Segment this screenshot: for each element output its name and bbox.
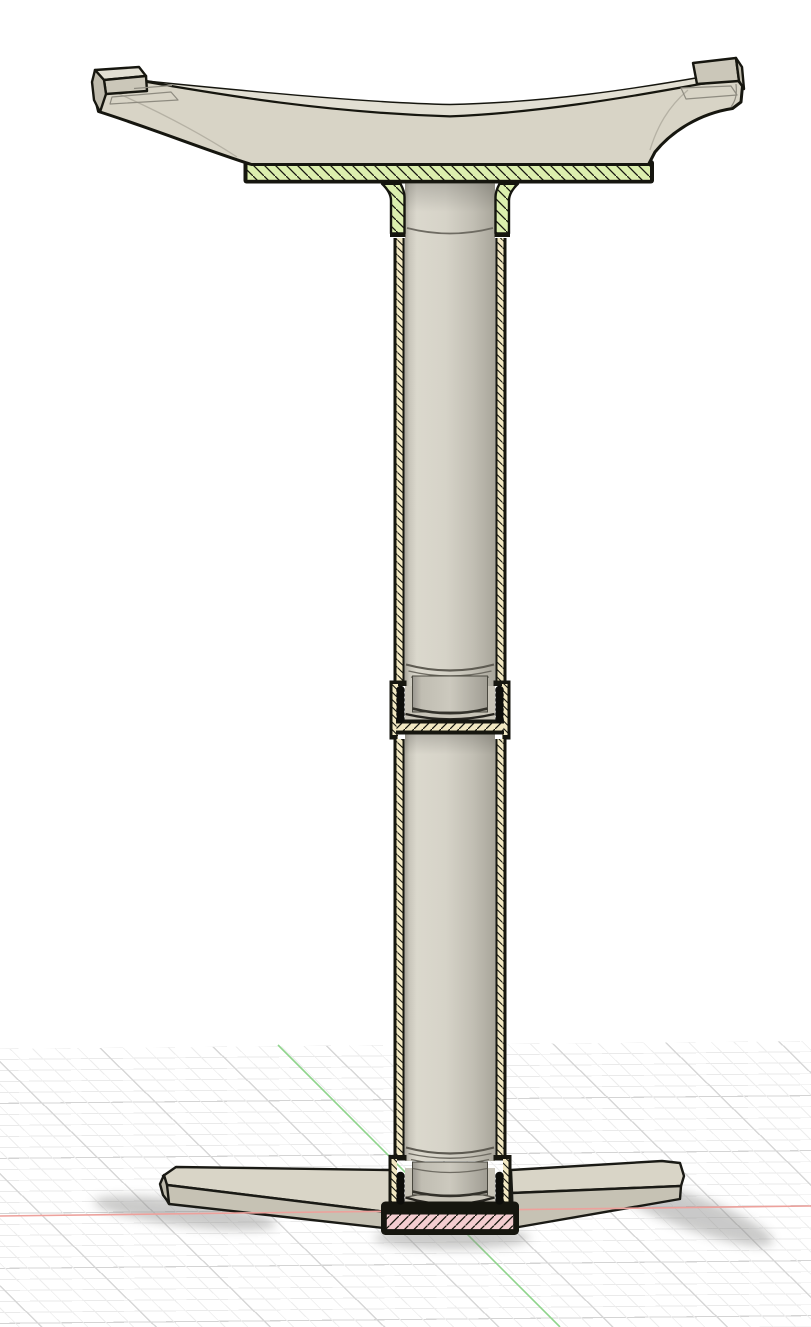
base-plate-section[interactable]: [381, 1202, 519, 1236]
column-assembly[interactable]: [244, 160, 655, 1235]
tube-bore: [405, 184, 495, 1162]
cad-viewport[interactable]: [0, 0, 811, 1327]
top-bracket[interactable]: [92, 58, 744, 165]
model-section-view[interactable]: [0, 0, 811, 1327]
right-foot[interactable]: [511, 1161, 684, 1228]
